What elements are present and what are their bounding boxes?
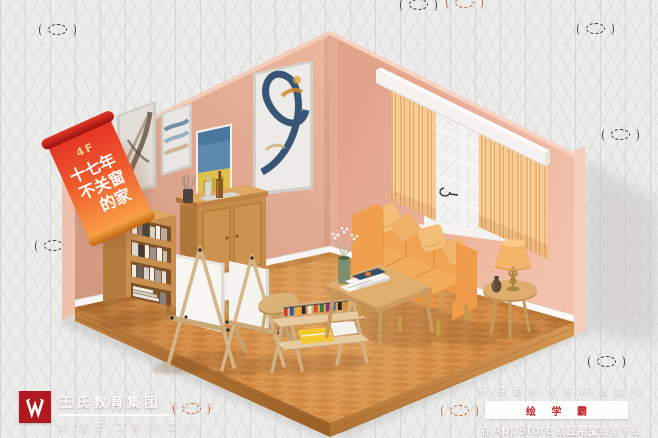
download-instruction: 在 AppStore 或 应用宝 搜索下载	[481, 422, 641, 438]
store-appstore: AppStore	[493, 422, 554, 437]
brand-logo	[19, 391, 51, 423]
store-yingyongbao: 应用宝	[567, 423, 599, 438]
room-scene: 4F 十七年 不关窗 的家	[0, 0, 658, 438]
download-prefix: 在	[481, 423, 492, 438]
download-or: 或	[555, 423, 566, 438]
promo-footer: 获得更多免费精品教程 绘 学 霸 在 AppStore 或 应用宝 搜索下载	[478, 383, 641, 438]
company-name: 王氏教育集团	[59, 391, 161, 411]
poster-stage: 4F 十七年 不关窗 的家 王氏教育集团 以人为本 始创于二零零二年 获得更多免…	[0, 0, 658, 438]
download-suffix: 搜索下载	[599, 423, 641, 438]
brand-footer: 王氏教育集团 以人为本 始创于二零零二年	[19, 391, 217, 433]
painting-blue-waves	[161, 103, 192, 176]
app-name-badge: 绘 学 霸	[485, 401, 628, 419]
brand-divider	[59, 414, 171, 416]
promo-headline: 获得更多免费精品教程	[478, 383, 648, 397]
company-slogan: 以人为本	[171, 397, 217, 410]
company-since: 始创于二零零二年	[59, 419, 217, 433]
app-name: 绘 学 霸	[526, 407, 593, 418]
painting-large-abstract	[253, 60, 313, 196]
w-logo-icon	[22, 394, 48, 420]
